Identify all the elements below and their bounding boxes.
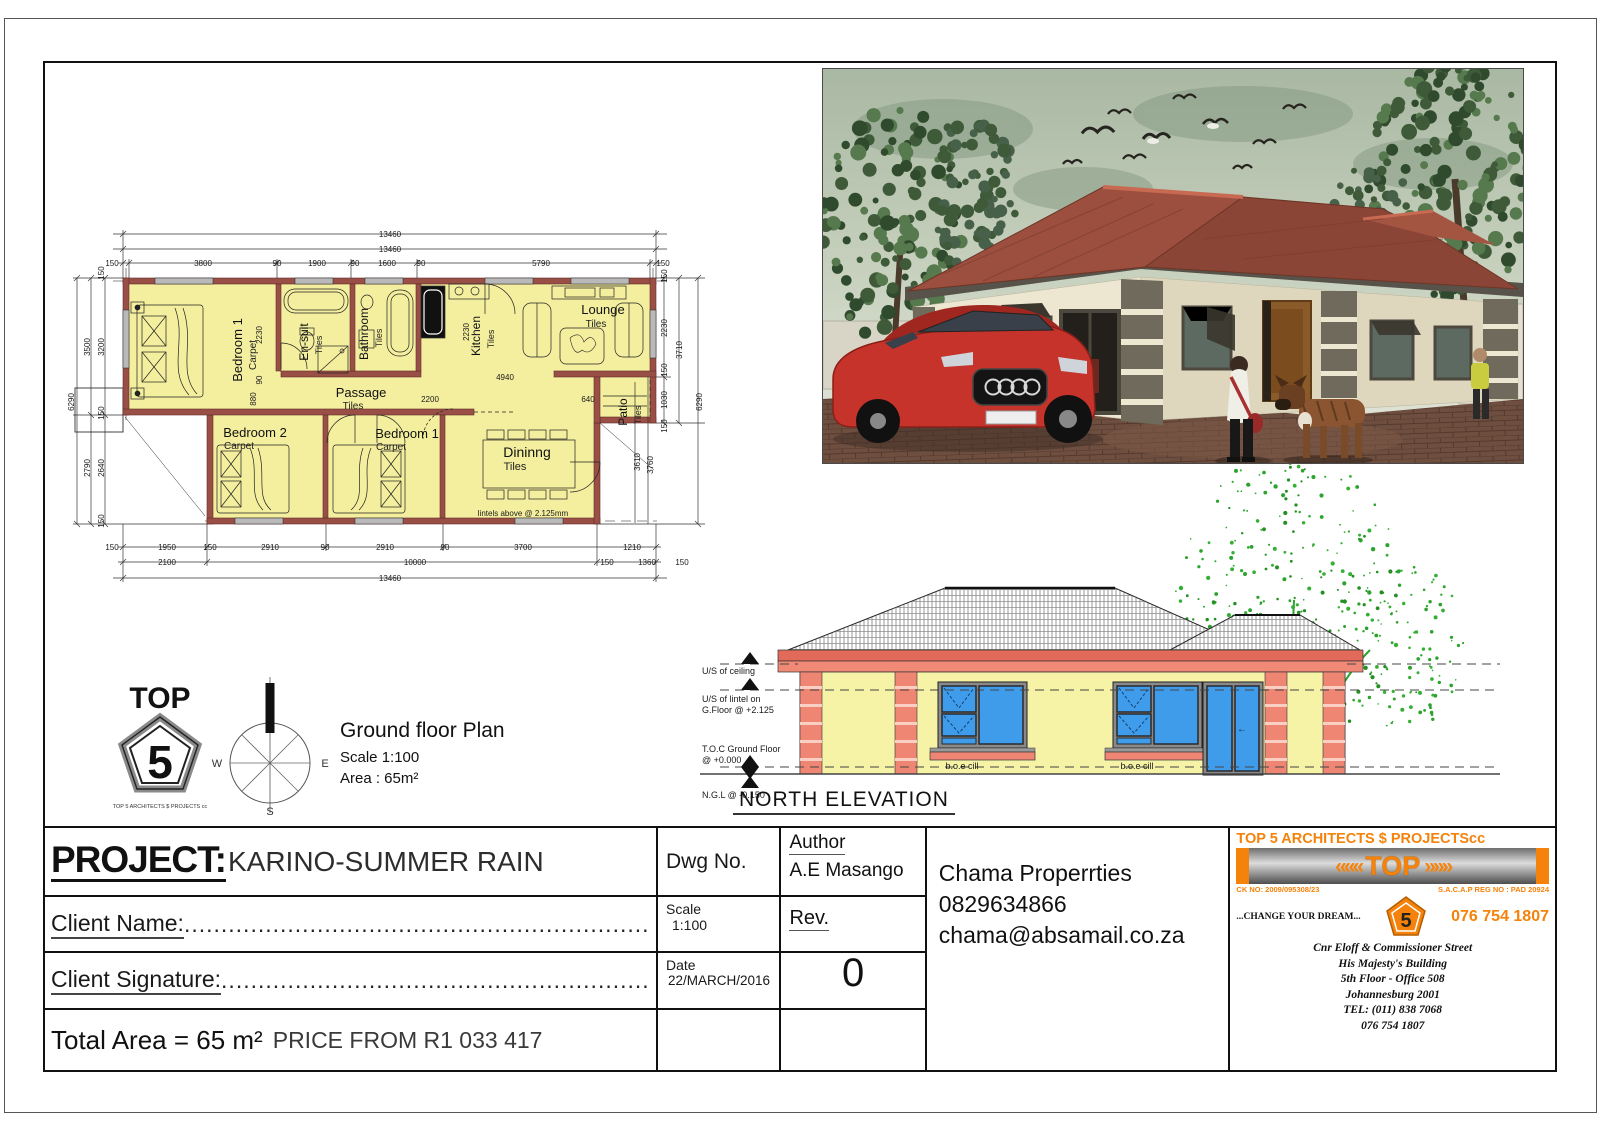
top5-logo-caption: TOP 5 ARCHITECTS $ PROJECTS cc	[113, 804, 208, 810]
render-3d	[822, 68, 1524, 464]
svg-text:1210: 1210	[623, 543, 641, 552]
author-label: Author	[789, 832, 845, 855]
architect-banner: ««« TOP »»»	[1236, 848, 1549, 884]
svg-text:@ +0.000: @ +0.000	[702, 755, 741, 765]
architect-phone[interactable]: 076 754 1807	[1451, 908, 1549, 926]
plan-title: Ground floor Plan	[340, 719, 505, 742]
author-cell: Author A.E Masango	[781, 828, 924, 897]
svg-text:Bathroom: Bathroom	[357, 308, 371, 360]
banner-top-text: TOP	[1365, 853, 1420, 880]
svg-text:Tiles: Tiles	[343, 401, 364, 412]
project-label: PROJECT:	[51, 841, 226, 883]
svg-text:150: 150	[675, 558, 689, 567]
floor-plan-svg: 1346013460150380090190090160090579015015…	[55, 210, 735, 605]
svg-text:Carpet: Carpet	[224, 441, 254, 452]
plan-title-group: TOP 5 TOP 5 ARCHITECTS $ PROJECTS cc W E…	[85, 675, 665, 815]
svg-text:640: 640	[581, 395, 595, 404]
sacap-number: S.A.C.A.P REG NO : PAD 20924	[1438, 885, 1549, 894]
fascia-upper	[778, 650, 1363, 661]
svg-text:2910: 2910	[376, 543, 394, 552]
dwg-no-label: Dwg No.	[666, 850, 747, 874]
svg-text:3500: 3500	[83, 338, 92, 356]
address-line: TEL: (011) 838 7068	[1236, 1003, 1549, 1019]
pentagon-5-icon: 5	[1385, 895, 1427, 939]
title-block: PROJECT: KARINO-SUMMER RAIN Client Name:…	[43, 826, 1557, 1072]
svg-text:5: 5	[147, 736, 173, 788]
svg-text:W: W	[212, 758, 223, 770]
svg-text:5: 5	[1400, 910, 1411, 932]
address-line: 5th Floor - Office 508	[1236, 972, 1549, 988]
svg-text:3760: 3760	[646, 456, 655, 474]
svg-text:2100: 2100	[158, 558, 176, 567]
plan-scale: Scale 1:100	[340, 749, 419, 766]
svg-text:En-suit: En-suit	[297, 323, 311, 361]
date-label: Date	[666, 957, 771, 973]
svg-text:←: ←	[1237, 724, 1247, 735]
date-cell: Date 22/MARCH/2016	[658, 953, 779, 1010]
address-line: His Majesty's Building	[1236, 957, 1549, 973]
svg-text:Tiles: Tiles	[586, 319, 607, 330]
svg-text:Kitchen: Kitchen	[469, 316, 483, 356]
architect-header: TOP 5 ARCHITECTS $ PROJECTScc	[1236, 831, 1549, 847]
svg-text:13460: 13460	[379, 230, 402, 239]
project-row: PROJECT: KARINO-SUMMER RAIN	[45, 828, 656, 897]
slogan-text: ...CHANGE YOUR DREAM...	[1236, 912, 1360, 922]
architect-address: Cnr Eloff & Commissioner Street His Maje…	[1236, 941, 1549, 1034]
svg-text:5790: 5790	[532, 259, 550, 268]
contact-company: Chama Properrties	[939, 858, 1225, 889]
client-signature-label: Client Signature:	[51, 966, 221, 995]
svg-text:Bedroom 1: Bedroom 1	[230, 318, 245, 382]
scale-value: 1:100	[672, 917, 771, 933]
svg-text:150: 150	[660, 419, 669, 433]
dwg-no-cell: Dwg No.	[658, 828, 779, 897]
svg-text:880: 880	[249, 392, 258, 406]
total-area-value: Total Area = 65 m²	[51, 1025, 263, 1056]
address-line: Johannesburg 2001	[1236, 988, 1549, 1004]
slogan-row: ...CHANGE YOUR DREAM... 5 076 754 1807	[1236, 895, 1549, 939]
registration-row: CK NO: 2009/095308/23 S.A.C.A.P REG NO :…	[1236, 885, 1549, 894]
client-signature-row: Client Signature: ......................…	[45, 953, 656, 1010]
title-block-author-column: Author A.E Masango Rev. 0	[781, 828, 926, 1070]
svg-text:Bedroom 2: Bedroom 2	[223, 425, 287, 440]
author-name: A.E Masango	[789, 860, 916, 882]
north-elevation-title: NORTH ELEVATION	[733, 788, 955, 815]
chevrons-right-icon: »»»	[1424, 856, 1450, 877]
svg-text:90: 90	[273, 259, 282, 268]
svg-text:S: S	[266, 806, 273, 815]
svg-text:90: 90	[351, 259, 360, 268]
svg-text:90: 90	[441, 543, 450, 552]
rev-value: 0	[781, 953, 924, 996]
svg-text:Carpet: Carpet	[376, 442, 406, 453]
svg-text:2640: 2640	[97, 459, 106, 477]
svg-text:Tiles: Tiles	[374, 328, 384, 347]
svg-text:E: E	[321, 758, 328, 770]
client-name-row: Client Name: ...........................…	[45, 897, 656, 953]
svg-text:3700: 3700	[514, 543, 532, 552]
svg-text:3800: 3800	[194, 259, 212, 268]
top5-logo-text: TOP	[129, 682, 190, 715]
rev-cell: Rev.	[781, 897, 924, 953]
title-block-meta-column: Dwg No. Scale 1:100 Date 22/MARCH/2016	[658, 828, 781, 1070]
title-block-left-column: PROJECT: KARINO-SUMMER RAIN Client Name:…	[45, 828, 658, 1070]
svg-text:Dininng: Dininng	[503, 444, 550, 460]
svg-text:U/S of ceiling: U/S of ceiling	[702, 666, 755, 676]
lintel-note: lintels above @ 2.125mm	[478, 509, 569, 518]
svg-text:150: 150	[97, 266, 106, 280]
svg-text:3710: 3710	[675, 341, 684, 359]
svg-text:1950: 1950	[158, 543, 176, 552]
svg-text:150: 150	[660, 363, 669, 377]
svg-text:2790: 2790	[83, 459, 92, 477]
svg-text:2200: 2200	[421, 395, 439, 404]
svg-text:2230: 2230	[660, 319, 669, 337]
client-name-field[interactable]: ........................................…	[184, 911, 650, 938]
svg-text:90: 90	[321, 543, 330, 552]
address-line: Cnr Eloff & Commissioner Street	[1236, 941, 1549, 957]
top5-pentagon-icon: 5	[122, 717, 198, 789]
svg-text:150: 150	[656, 259, 670, 268]
svg-text:Lounge: Lounge	[581, 302, 624, 317]
svg-text:G.Floor @ +2.125: G.Floor @ +2.125	[702, 705, 774, 715]
scale-label: Scale	[666, 901, 771, 917]
contact-email[interactable]: chama@absamail.co.za	[939, 920, 1225, 951]
svg-text:Tiles: Tiles	[314, 335, 324, 354]
plan-area: Area : 65m²	[340, 770, 418, 787]
address-line: 076 754 1807	[1236, 1019, 1549, 1035]
svg-text:Tiles: Tiles	[504, 461, 527, 473]
contact-block: Chama Properrties 0829634866 chama@absam…	[927, 828, 1229, 951]
svg-text:150: 150	[600, 558, 614, 567]
svg-text:Passage: Passage	[336, 385, 387, 400]
svg-text:3610: 3610	[633, 453, 642, 471]
fascia-lower	[778, 661, 1363, 672]
svg-text:150: 150	[660, 269, 669, 283]
svg-text:2910: 2910	[261, 543, 279, 552]
elevation-door: ←	[1203, 682, 1263, 775]
svg-text:6290: 6290	[67, 393, 76, 411]
svg-text:T.O.C Ground Floor: T.O.C Ground Floor	[702, 744, 781, 754]
empty-cell-2	[781, 1010, 924, 1070]
svg-text:13460: 13460	[379, 245, 402, 254]
empty-cell-1	[658, 1010, 779, 1070]
drawing-sheet: 1346013460150380090190090160090579015015…	[0, 0, 1600, 1130]
chevrons-left-icon: «««	[1335, 856, 1361, 877]
svg-text:U/S of lintel on: U/S of lintel on	[702, 694, 761, 704]
svg-text:Tiles: Tiles	[633, 405, 643, 424]
ck-number: CK NO: 2009/095308/23	[1236, 885, 1319, 894]
svg-text:1900: 1900	[308, 259, 326, 268]
total-area-row: Total Area = 65 m² PRICE FROM R1 033 417	[45, 1010, 656, 1070]
contact-phone: 0829634866	[939, 889, 1225, 920]
svg-text:90: 90	[417, 259, 426, 268]
svg-text:b.o.e cill: b.o.e cill	[945, 761, 978, 771]
svg-text:13460: 13460	[379, 574, 402, 583]
svg-text:3200: 3200	[97, 338, 106, 356]
compass-icon: W E S	[212, 677, 329, 815]
svg-text:Patio: Patio	[616, 398, 630, 426]
client-signature-field[interactable]: ........................................…	[221, 967, 650, 994]
north-elevation-svg: ← U/S of ceiling U/S of lintel on G.Floo…	[690, 440, 1510, 810]
svg-text:150: 150	[105, 259, 119, 268]
svg-text:1360: 1360	[638, 558, 656, 567]
architect-block: TOP 5 ARCHITECTS $ PROJECTScc ««« TOP »»…	[1230, 828, 1555, 1070]
svg-text:1030: 1030	[660, 391, 669, 409]
svg-text:10000: 10000	[404, 558, 427, 567]
date-value: 22/MARCH/2016	[668, 973, 771, 988]
rev-label: Rev.	[789, 907, 829, 931]
elevation-roof	[788, 588, 1360, 650]
scale-cell: Scale 1:100	[658, 897, 779, 953]
svg-text:150: 150	[97, 406, 106, 420]
svg-text:Bedroom 1: Bedroom 1	[375, 426, 439, 441]
svg-text:6290: 6290	[695, 393, 704, 411]
svg-text:b.o.e cill: b.o.e cill	[1120, 761, 1153, 771]
svg-text:150: 150	[203, 543, 217, 552]
title-block-contact-column: Chama Properrties 0829634866 chama@absam…	[927, 828, 1231, 1070]
client-name-label: Client Name:	[51, 910, 184, 939]
svg-text:Carpet: Carpet	[248, 340, 259, 370]
project-name: KARINO-SUMMER RAIN	[228, 846, 544, 878]
svg-text:Tiles: Tiles	[486, 329, 496, 348]
svg-text:4940: 4940	[496, 373, 514, 382]
svg-text:1600: 1600	[378, 259, 396, 268]
svg-text:150: 150	[97, 514, 106, 528]
svg-text:90: 90	[255, 375, 264, 384]
svg-text:150: 150	[105, 543, 119, 552]
rev-value-cell: 0	[781, 953, 924, 1010]
price-value: PRICE FROM R1 033 417	[273, 1027, 543, 1054]
